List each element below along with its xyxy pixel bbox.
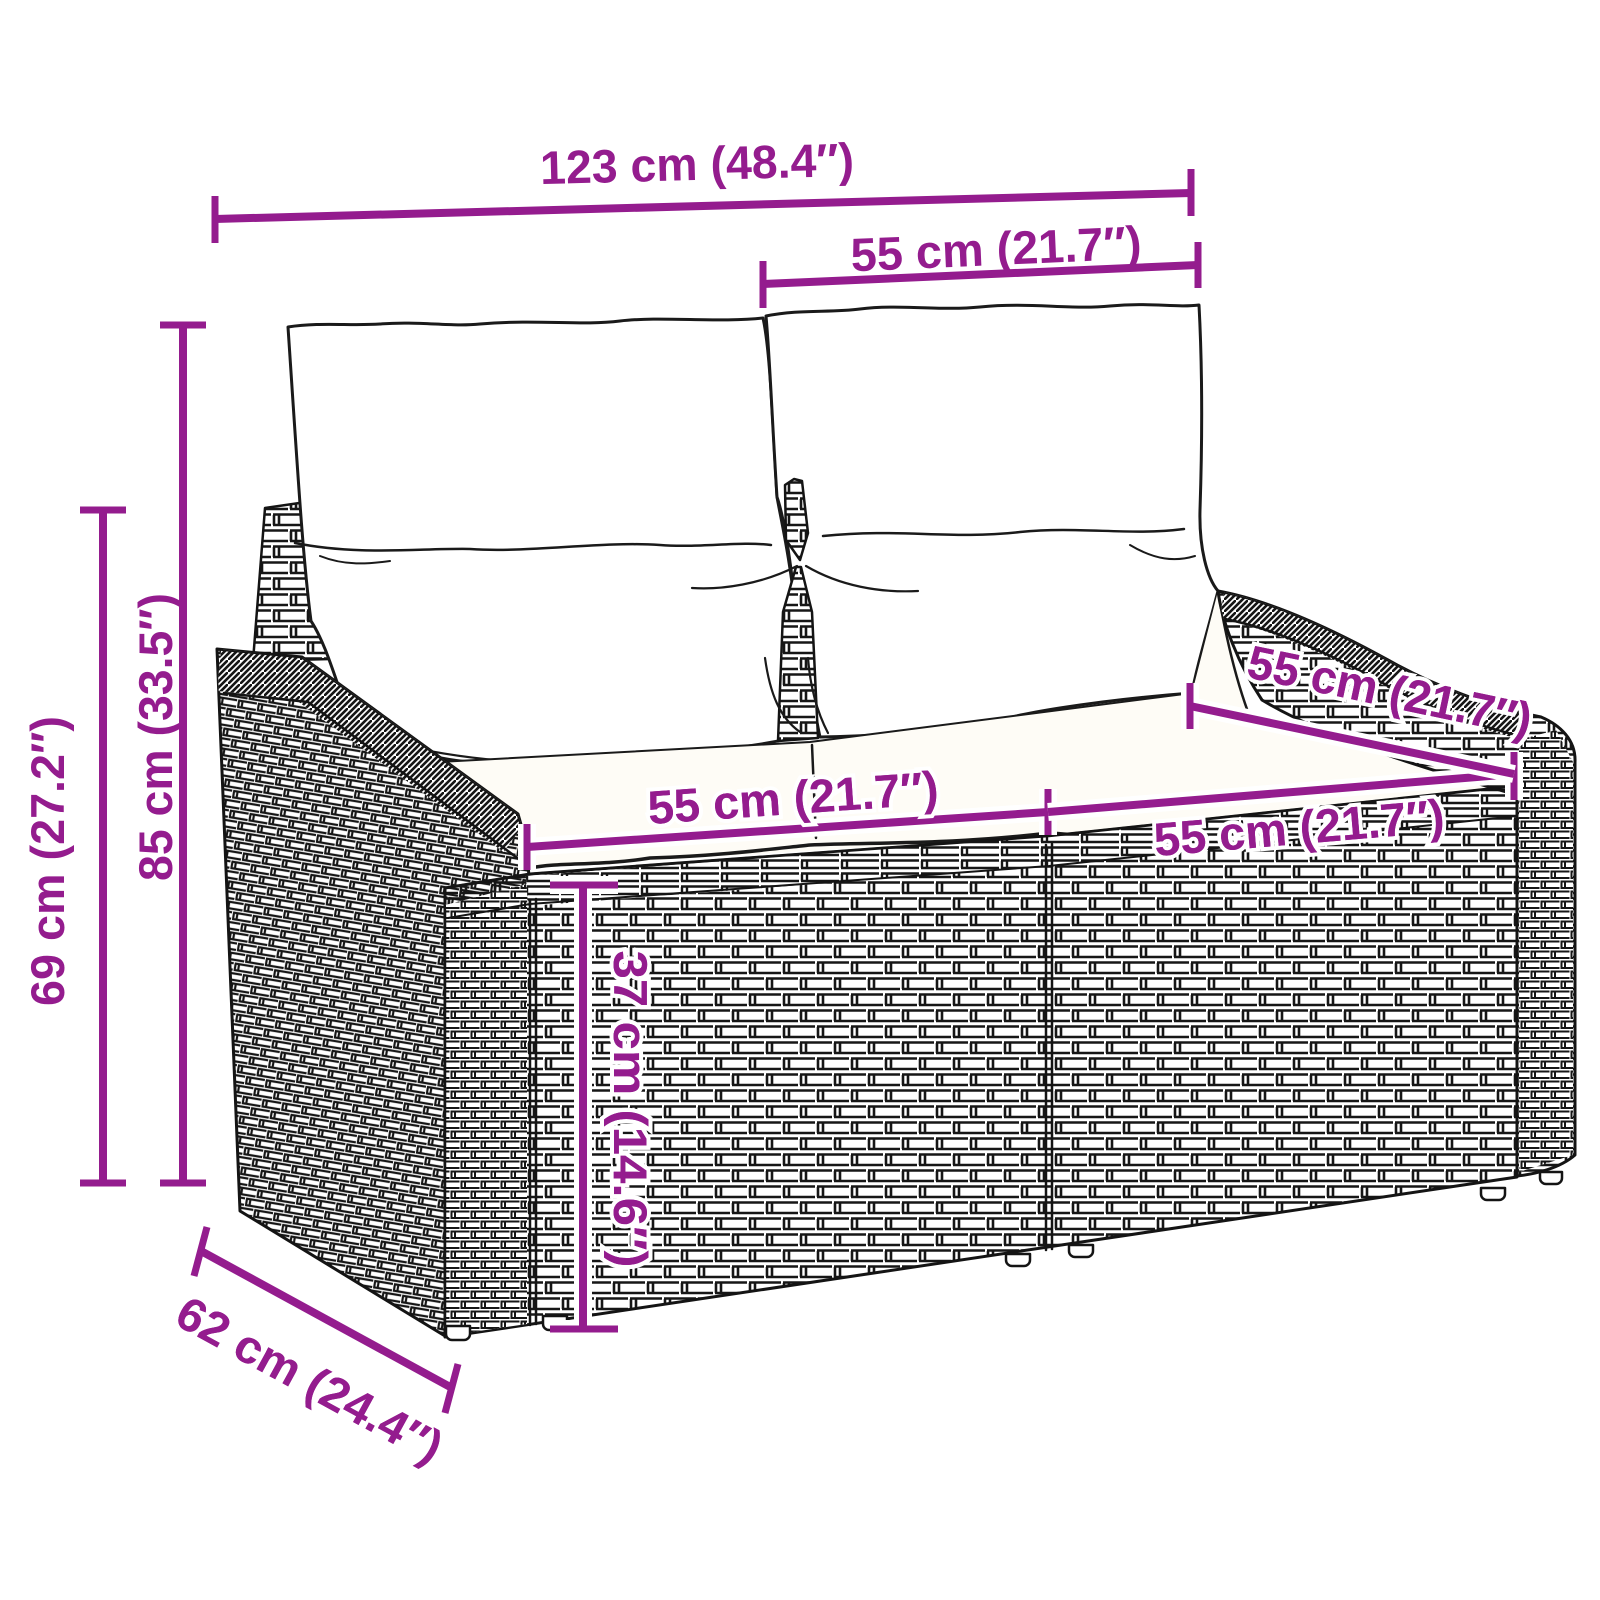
svg-text:85 cm (33.5″): 85 cm (33.5″) bbox=[129, 593, 182, 881]
svg-text:37 cm (14.6″): 37 cm (14.6″) bbox=[604, 951, 657, 1268]
svg-text:123 cm (48.4″): 123 cm (48.4″) bbox=[539, 133, 854, 194]
svg-text:69 cm (27.2″): 69 cm (27.2″) bbox=[21, 716, 74, 1006]
